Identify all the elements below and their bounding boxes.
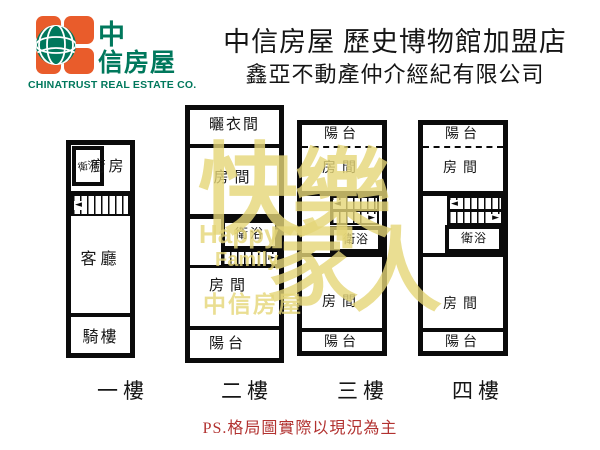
wall-2f-a [190, 144, 279, 148]
room-label-room-upper-4f: 房間 [423, 161, 503, 176]
room-label-arcade-1f: 騎樓 [71, 329, 130, 347]
room-label-bath-3f: 衛浴 [343, 233, 369, 246]
room-label-drying-2f: 曬衣間 [190, 117, 279, 134]
chinatrust-logo-icon [33, 14, 97, 80]
bathroom-2f: 衛浴 [221, 219, 279, 250]
wall-2f-d [190, 326, 279, 330]
stairs-arrow-right-2f: ► [267, 254, 276, 263]
stairs-upper-3f: ◄ [330, 196, 379, 211]
stairs-arrow-left-3f: ◄ [333, 200, 342, 209]
stairs-arrow-left-1f: ◄ [74, 201, 83, 210]
stairs-upper-4f: ◄ [447, 196, 503, 211]
bathroom-3f: 衛浴 [330, 226, 382, 253]
floorplan-1f: 衛浴 廚房 ◄ 客廳 騎樓 [66, 140, 135, 358]
floor-label-4f: 四樓 [443, 380, 513, 403]
stairs-1f: ◄ [71, 194, 130, 216]
floorplan-4f: 陽台 房間 ◄ ► 衛浴 房間 陽台 [418, 120, 508, 356]
room-label-kitchen-1f: 廚房 [87, 159, 130, 176]
room-label-room-upper-3f: 房間 [302, 161, 382, 176]
chinatrust-logo: 中 信房屋 CHINATRUST REAL ESTATE CO. [28, 10, 208, 94]
floorplan-flyer: 中 信房屋 CHINATRUST REAL ESTATE CO. 中信房屋 歷史… [0, 0, 600, 450]
room-label-balcony-bottom-4f: 陽台 [423, 335, 503, 350]
wall-4f-d [423, 328, 503, 332]
floor-label-2f: 二樓 [212, 380, 282, 403]
stairs-arrow-right-3f: ► [367, 214, 376, 223]
wall-3f-c [302, 253, 382, 257]
floorplan-2f: 曬衣間 房間 衛浴 ► 房間 陽台 [185, 105, 284, 363]
room-label-room-lower-4f: 房間 [423, 297, 503, 312]
wall-4f-a [423, 146, 503, 148]
room-label-bath-4f: 衛浴 [461, 232, 487, 245]
wall-1f-b [71, 313, 130, 317]
room-label-living-1f: 客廳 [71, 251, 130, 269]
room-label-balcony-2f: 陽台 [190, 336, 266, 353]
wall-4f-c [423, 253, 503, 257]
room-label-balcony-top-3f: 陽台 [302, 127, 382, 142]
stairs-lower-3f: ► [330, 210, 379, 225]
room-label-balcony-top-4f: 陽台 [423, 127, 503, 142]
page-title: 中信房屋 歷史博物館加盟店 [195, 20, 595, 59]
bathroom-4f: 衛浴 [445, 225, 503, 253]
logo-char-rest: 信房屋 [98, 43, 176, 79]
room-label-room-lower-2f: 房間 [190, 278, 270, 295]
room-label-room-lower-3f: 房間 [302, 295, 382, 310]
wall-3f-a [302, 146, 382, 148]
stairs-arrow-right-4f: ► [491, 214, 500, 223]
floor-label-1f: 一樓 [88, 380, 158, 403]
floorplan-3f: 陽台 房間 ◄ ► 衛浴 房間 陽台 [297, 120, 387, 356]
wall-2f-c [190, 265, 279, 268]
disclaimer-note: PS.格局圖實際以現況為主 [150, 414, 450, 438]
floor-label-3f: 三樓 [328, 380, 398, 403]
room-label-bath-2f: 衛浴 [235, 227, 265, 241]
logo-caption: CHINATRUST REAL ESTATE CO. [28, 79, 208, 91]
room-label-balcony-bottom-3f: 陽台 [302, 335, 382, 350]
wall-3f-d [302, 328, 382, 332]
page-subtitle: 鑫亞不動產仲介經紀有限公司 [195, 57, 595, 89]
stairs-arrow-left-4f: ◄ [450, 200, 459, 209]
room-label-room-upper-2f: 房間 [190, 170, 279, 187]
stairs-lower-4f: ► [447, 210, 503, 225]
stairs-2f: ► [221, 250, 279, 266]
